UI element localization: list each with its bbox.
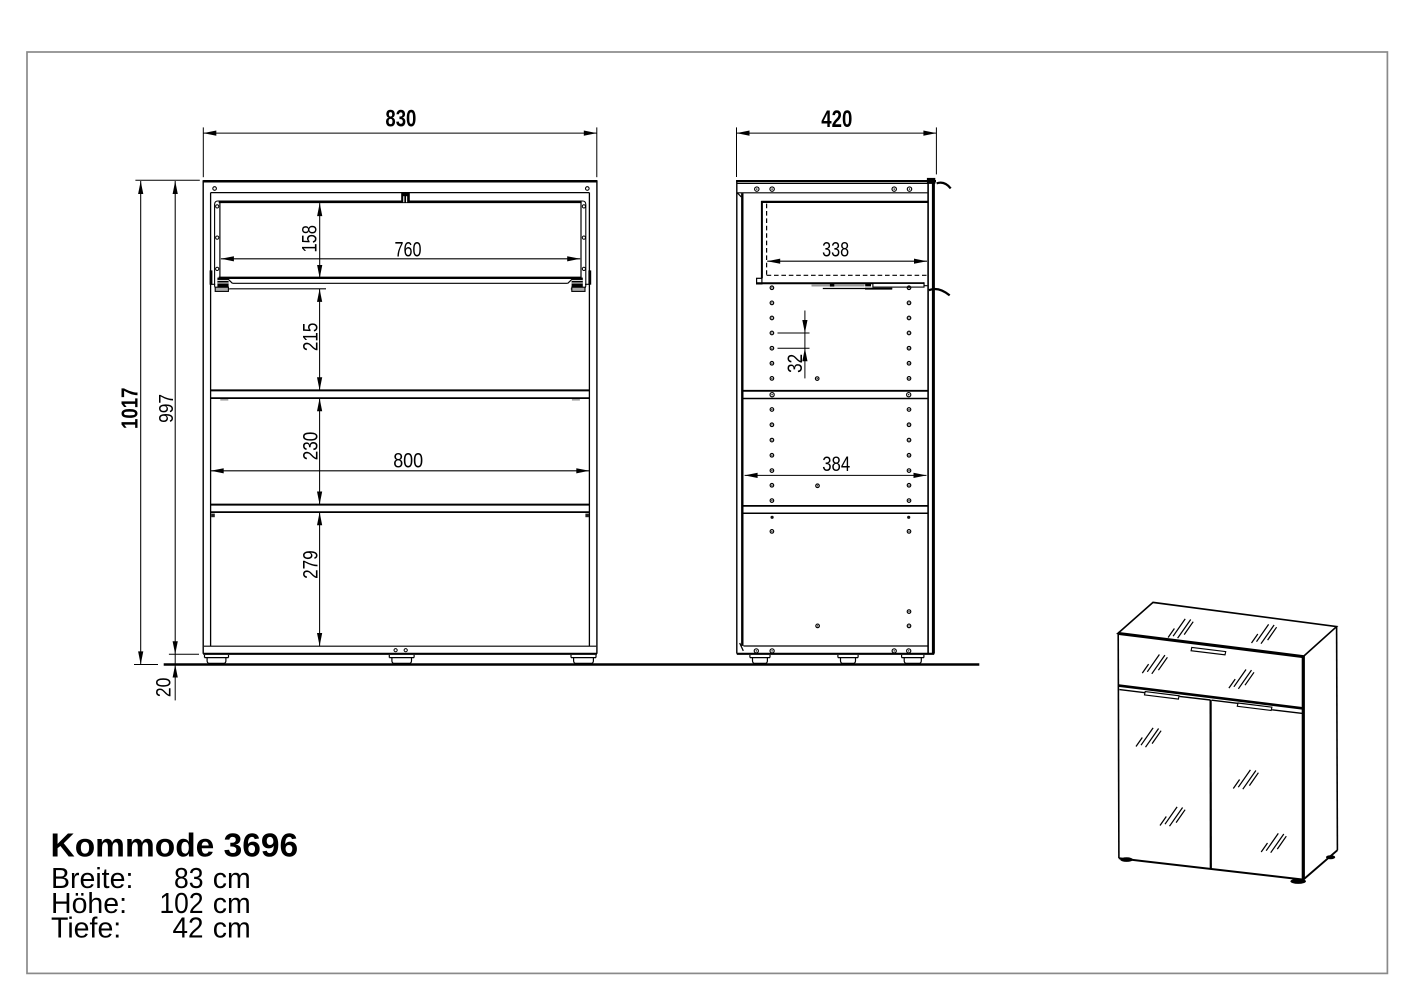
svg-text:997: 997 <box>155 394 178 423</box>
svg-text:215: 215 <box>300 323 323 352</box>
svg-text:279: 279 <box>300 550 323 579</box>
svg-text:Kommode 3696: Kommode 3696 <box>51 828 299 865</box>
svg-text:338: 338 <box>822 239 849 262</box>
svg-text:cm: cm <box>213 913 251 945</box>
svg-text:830: 830 <box>385 106 416 133</box>
svg-text:20: 20 <box>152 678 175 698</box>
svg-text:800: 800 <box>393 449 423 472</box>
svg-text:760: 760 <box>395 238 422 261</box>
svg-text:384: 384 <box>822 453 850 476</box>
svg-text:420: 420 <box>821 106 852 133</box>
svg-text:32: 32 <box>784 354 807 373</box>
svg-text:42: 42 <box>173 913 204 945</box>
svg-text:Tiefe:: Tiefe: <box>51 913 121 945</box>
svg-text:230: 230 <box>300 432 323 461</box>
svg-text:158: 158 <box>298 225 321 253</box>
svg-text:1017: 1017 <box>116 387 142 429</box>
